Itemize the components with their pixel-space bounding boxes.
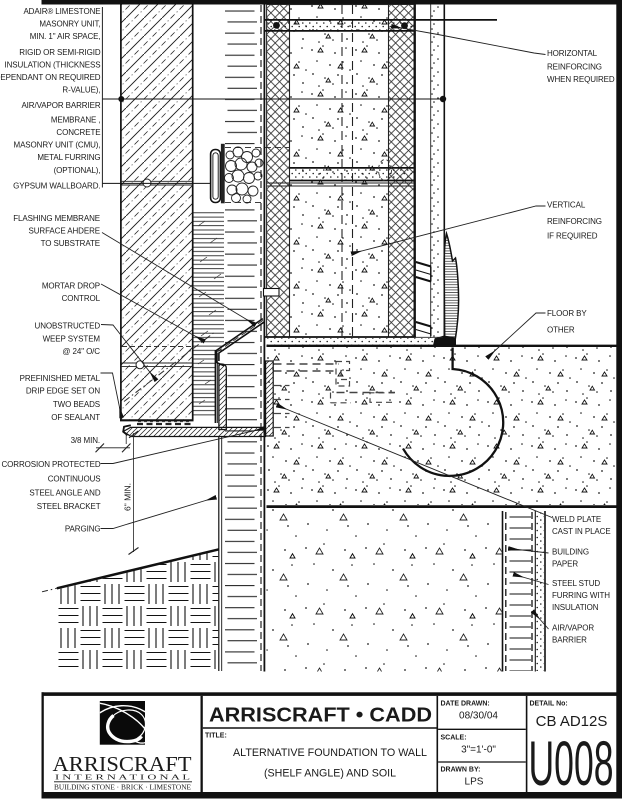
svg-text:WEEP SYSTEM: WEEP SYSTEM xyxy=(43,334,101,343)
svg-text:CONCRETE: CONCRETE xyxy=(56,128,100,137)
svg-text:ARRISCRAFT: ARRISCRAFT xyxy=(53,752,192,776)
svg-text:6" MIN.: 6" MIN. xyxy=(123,483,133,511)
svg-text:CAST IN PLACE: CAST IN PLACE xyxy=(552,527,611,536)
svg-text:@ 24" O/C: @ 24" O/C xyxy=(62,347,100,356)
svg-text:STEEL BRACKET: STEEL BRACKET xyxy=(37,502,101,511)
svg-text:R-VALUE),: R-VALUE), xyxy=(62,85,100,94)
svg-text:MASONRY UNIT (CMU),: MASONRY UNIT (CMU), xyxy=(14,141,101,150)
svg-text:DATE DRAWN:: DATE DRAWN: xyxy=(441,701,490,708)
svg-text:WELD PLATE: WELD PLATE xyxy=(552,515,601,524)
svg-text:TWO BEADS: TWO BEADS xyxy=(53,400,100,409)
svg-text:CONTINUOUS: CONTINUOUS xyxy=(48,474,101,483)
svg-text:CB AD12S: CB AD12S xyxy=(536,713,608,730)
svg-text:FLOOR BY: FLOOR BY xyxy=(547,309,587,318)
svg-text:DEPENDANT ON REQUIRED: DEPENDANT ON REQUIRED xyxy=(0,73,101,82)
svg-text:FURRING WITH: FURRING WITH xyxy=(552,591,610,600)
svg-text:ARRISCRAFT • CADD: ARRISCRAFT • CADD xyxy=(209,705,432,727)
svg-text:INSULATION (THICKNESS: INSULATION (THICKNESS xyxy=(5,60,101,69)
svg-text:MASONRY UNIT,: MASONRY UNIT, xyxy=(39,19,100,28)
svg-text:AIR/VAPOR BARRIER: AIR/VAPOR BARRIER xyxy=(21,101,100,110)
svg-text:3/8 MIN.: 3/8 MIN. xyxy=(71,436,100,445)
svg-text:08/30/04: 08/30/04 xyxy=(459,711,498,722)
svg-text:SURFACE AHDERE: SURFACE AHDERE xyxy=(28,226,100,235)
svg-text:TITLE:: TITLE: xyxy=(205,733,227,740)
svg-text:WHEN REQUIRED: WHEN REQUIRED xyxy=(547,75,615,84)
svg-text:BUILDING: BUILDING xyxy=(552,547,589,556)
svg-text:STEEL STUD: STEEL STUD xyxy=(552,579,600,588)
svg-text:IF REQUIRED: IF REQUIRED xyxy=(547,231,598,240)
svg-text:DRAWN BY:: DRAWN BY: xyxy=(441,767,481,774)
svg-text:U008: U008 xyxy=(529,729,614,799)
svg-text:MEMBRANE ,: MEMBRANE , xyxy=(51,115,101,124)
svg-text:PARGING: PARGING xyxy=(65,524,101,533)
svg-text:CONTROL: CONTROL xyxy=(62,294,101,303)
svg-text:BARRIER: BARRIER xyxy=(552,635,587,644)
svg-text:FLASHING MEMBRANE: FLASHING MEMBRANE xyxy=(13,214,100,223)
svg-text:METAL FURRING: METAL FURRING xyxy=(37,153,100,162)
svg-text:TO SUBSTRATE: TO SUBSTRATE xyxy=(41,239,100,248)
svg-text:AIR/VAPOR: AIR/VAPOR xyxy=(552,623,594,632)
svg-text:OF SEALANT: OF SEALANT xyxy=(51,413,100,422)
svg-text:PREFINISHED METAL: PREFINISHED METAL xyxy=(20,374,101,383)
svg-text:I N T E R N A T I O N A L: I N T E R N A T I O N A L xyxy=(55,774,190,781)
svg-text:GYPSUM WALLBOARD.: GYPSUM WALLBOARD. xyxy=(13,181,100,190)
svg-text:ALTERNATIVE FOUNDATION TO WALL: ALTERNATIVE FOUNDATION TO WALL xyxy=(233,747,427,759)
svg-text:MORTAR DROP: MORTAR DROP xyxy=(42,281,100,290)
svg-text:ADAIR® LIMESTONE: ADAIR® LIMESTONE xyxy=(23,7,100,16)
svg-text:INSULATION: INSULATION xyxy=(552,603,599,612)
svg-text:VERTICAL: VERTICAL xyxy=(547,200,586,209)
svg-text:RIGID OR SEMI-RIGID: RIGID OR SEMI-RIGID xyxy=(19,48,101,57)
svg-text:HORIZONTAL: HORIZONTAL xyxy=(547,49,598,58)
svg-text:DRIP EDGE SET ON: DRIP EDGE SET ON xyxy=(26,386,100,395)
svg-text:STEEL ANGLE AND: STEEL ANGLE AND xyxy=(29,488,100,497)
svg-text:BUILDING STONE · BRICK · LIMES: BUILDING STONE · BRICK · LIMESTONE xyxy=(54,784,191,792)
svg-text:UNOBSTRUCTED: UNOBSTRUCTED xyxy=(35,322,101,331)
svg-text:REINFORCING: REINFORCING xyxy=(547,63,602,72)
svg-text:SCALE:: SCALE: xyxy=(441,735,467,742)
svg-text:DETAIL No:: DETAIL No: xyxy=(530,701,568,708)
svg-text:(SHELF ANGLE) AND SOIL: (SHELF ANGLE) AND SOIL xyxy=(264,768,396,780)
svg-text:CORROSION PROTECTED: CORROSION PROTECTED xyxy=(2,460,101,469)
svg-text:OTHER: OTHER xyxy=(547,325,575,334)
svg-text:LPS: LPS xyxy=(465,777,484,788)
svg-text:3"=1'-0": 3"=1'-0" xyxy=(461,745,496,756)
svg-text:PAPER: PAPER xyxy=(552,559,578,568)
svg-text:REINFORCING: REINFORCING xyxy=(547,217,602,226)
svg-text:MIN. 1" AIR SPACE,: MIN. 1" AIR SPACE, xyxy=(30,32,101,41)
svg-text:(OPTIONAL),: (OPTIONAL), xyxy=(54,166,101,175)
